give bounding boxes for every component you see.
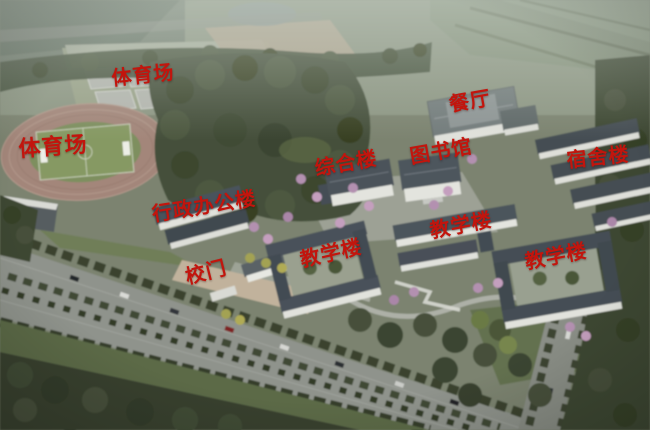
campus-scene-art [0, 0, 650, 430]
label-dormitory-building: 宿舍楼 [566, 144, 631, 170]
label-stadium: 体育场 [18, 134, 88, 161]
vignette-overlay [0, 0, 650, 430]
campus-rendering: 体育场 体育场 餐厅 综合楼 图书馆 宿舍楼 行政办公楼 教学楼 教学楼 教学楼… [0, 0, 650, 430]
label-sports-ground-north: 体育场 [111, 62, 176, 88]
